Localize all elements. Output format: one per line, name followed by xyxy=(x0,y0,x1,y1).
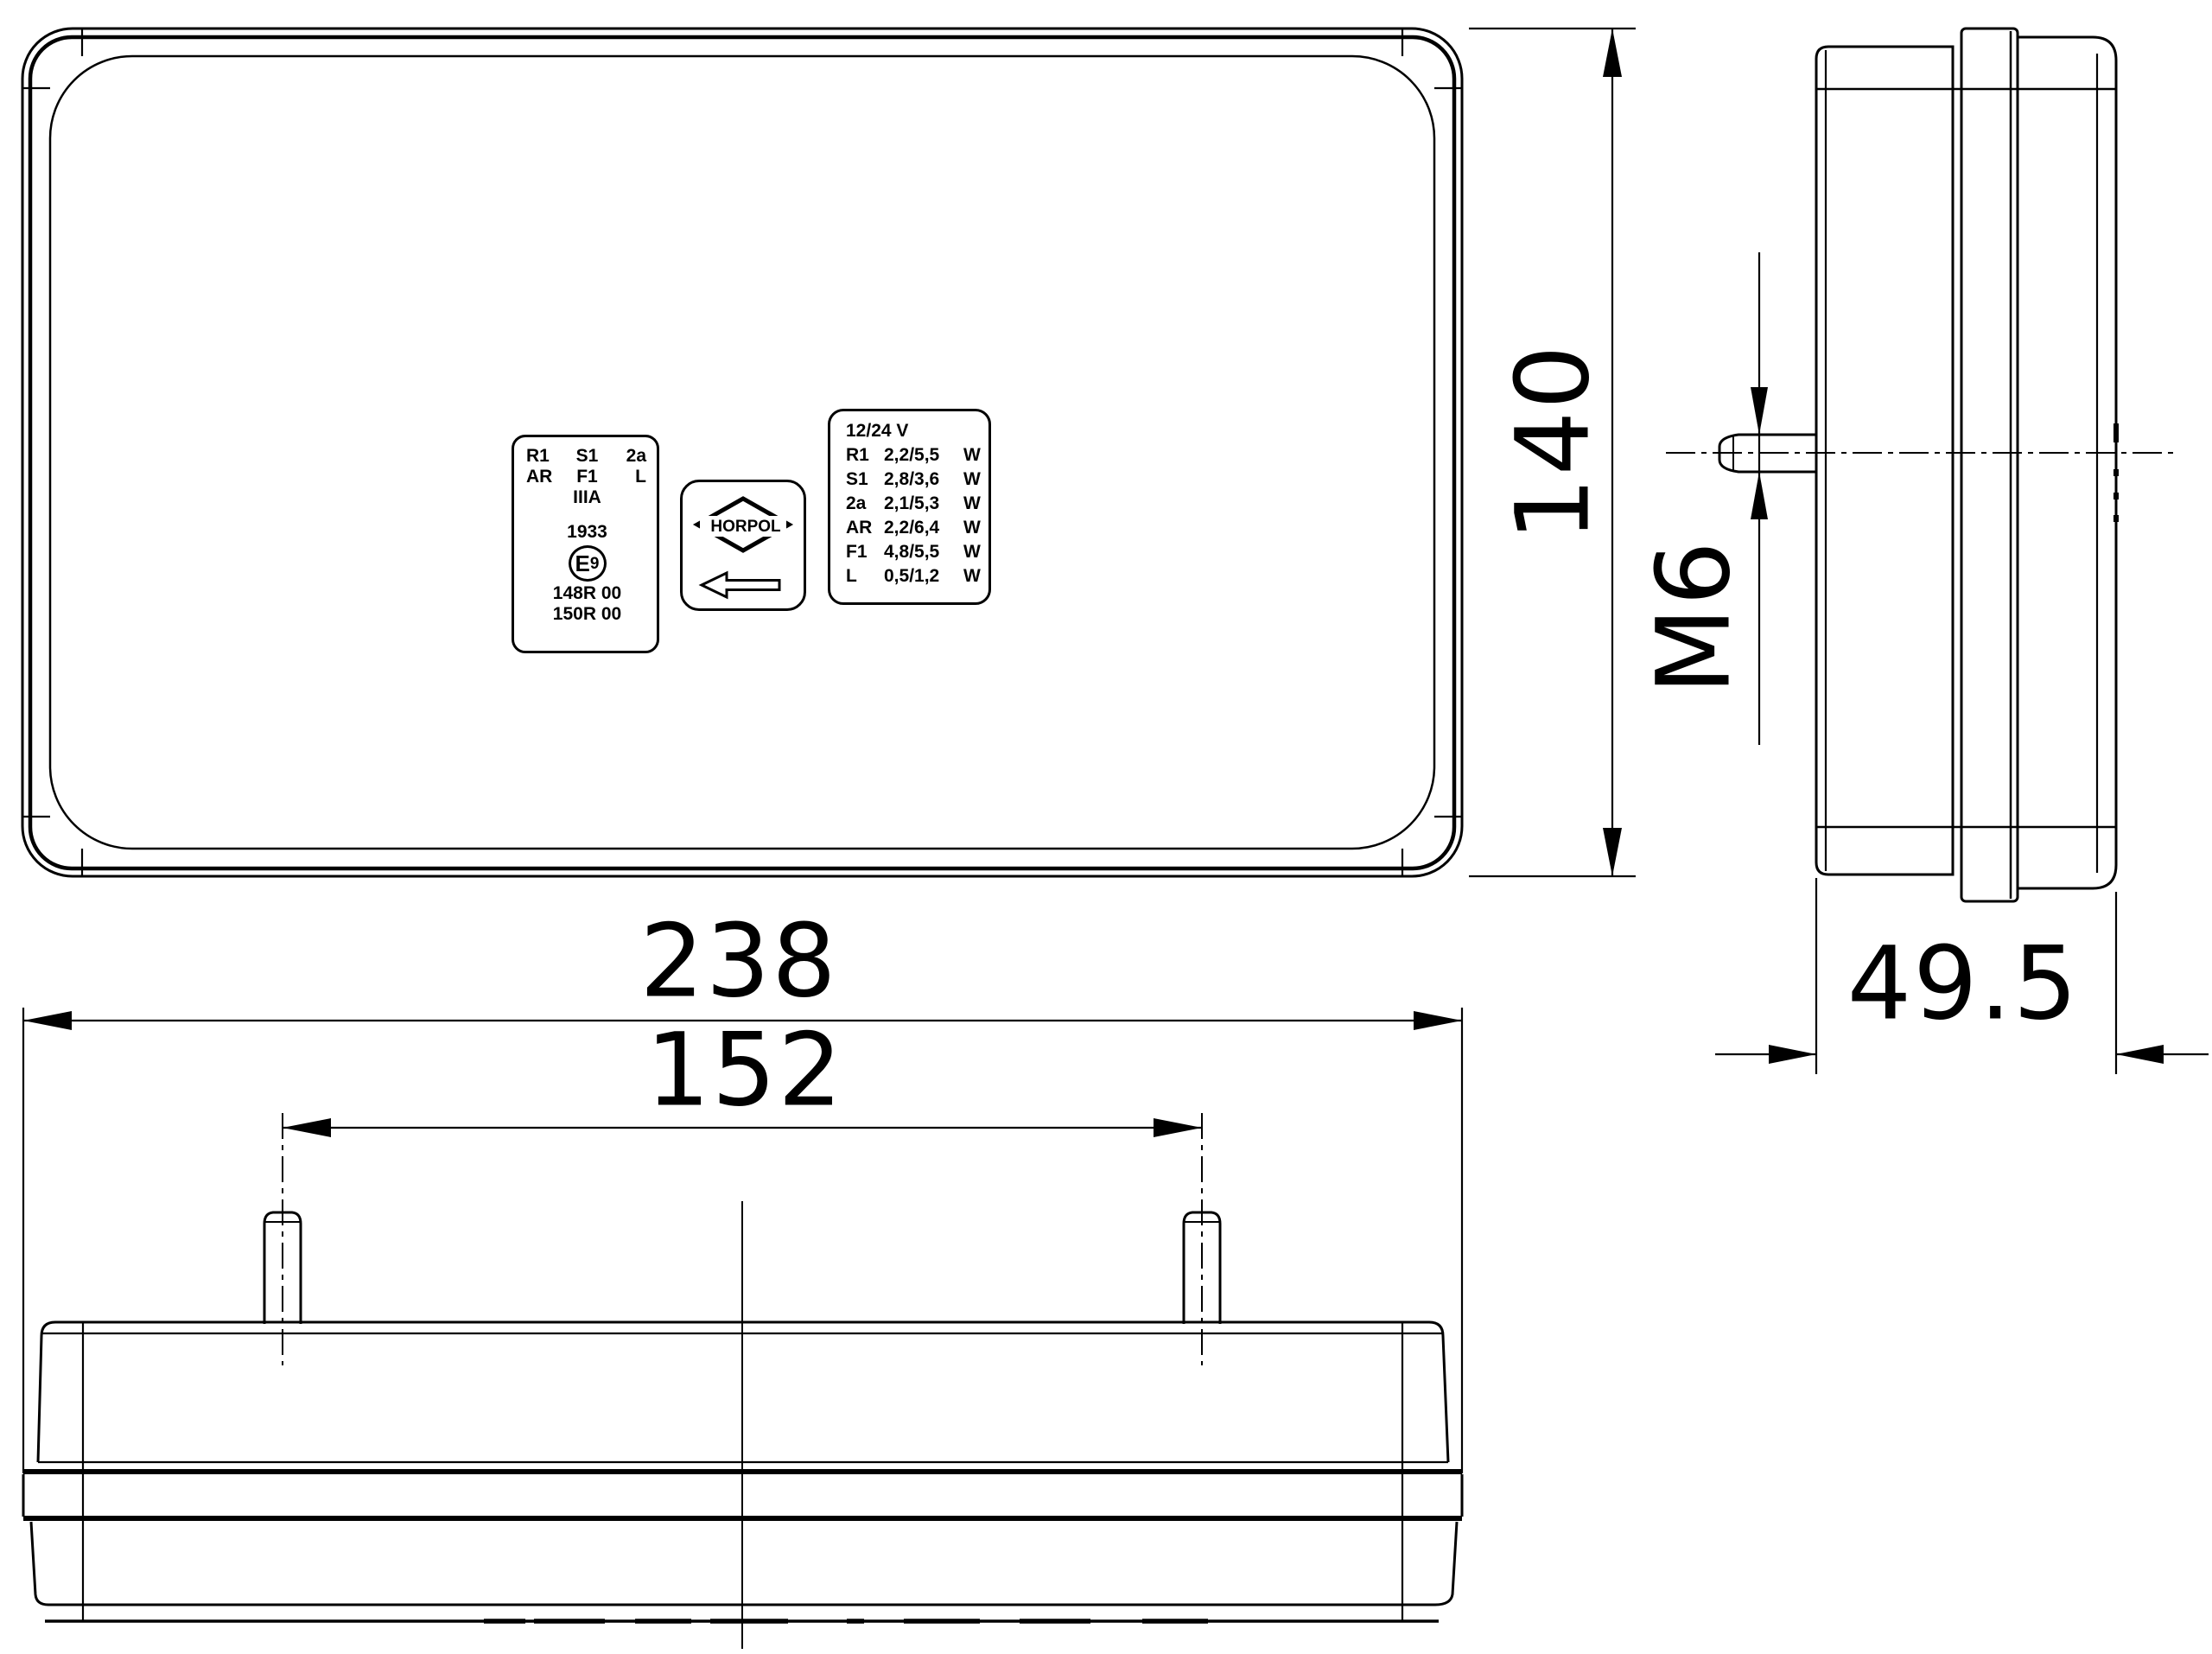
dim-overall-width: 238 xyxy=(639,902,837,1021)
corner-ticks xyxy=(22,29,1462,876)
fn-2a: 2a xyxy=(607,446,648,467)
approval-number: 1933 xyxy=(526,522,648,543)
approval-functions-row2: AR F1 L xyxy=(526,467,648,487)
e-mark: E9 xyxy=(569,545,607,582)
dim-m6-lines xyxy=(1751,252,1768,745)
spec-row: L 0,5/1,2 W xyxy=(846,564,988,588)
spec-row: 2a 2,1/5,3 W xyxy=(846,492,988,516)
approval-category: IIIA xyxy=(526,487,648,508)
spec-voltage: 12/24 V xyxy=(846,419,988,443)
side-view-outline xyxy=(1666,29,2174,901)
dim-overall-height: 140 xyxy=(1494,343,1612,541)
fn-f1: F1 xyxy=(567,467,607,487)
spec-label: 12/24 V R1 2,2/5,5 W S1 2,8/3,6 W 2a 2,1… xyxy=(828,409,991,605)
spec-row: F1 4,8/5,5 W xyxy=(846,540,988,564)
spec-row: S1 2,8/3,6 W xyxy=(846,468,988,492)
approval-functions-row1: R1 S1 2a xyxy=(526,446,648,467)
fn-l: L xyxy=(607,467,648,487)
e-mark-letter: E xyxy=(575,552,590,575)
fn-r1: R1 xyxy=(526,446,567,467)
technical-drawing-sheet: 238 152 140 M6 49.5 R1 S1 2a AR F1 L III… xyxy=(0,0,2212,1654)
fn-ar: AR xyxy=(526,467,567,487)
dim-overall-depth: 49.5 xyxy=(1847,925,2080,1043)
spec-row: AR 2,2/6,4 W xyxy=(846,516,988,540)
brand-label: HORPOL xyxy=(680,480,806,611)
brand-name: HORPOL xyxy=(708,518,783,537)
dim-stud-thread: M6 xyxy=(1635,539,1753,694)
front-view-outline xyxy=(22,29,1462,876)
fn-s1: S1 xyxy=(567,446,607,467)
e-mark-digit: 9 xyxy=(590,556,600,572)
bottom-view-outline xyxy=(23,1113,1462,1649)
drawing-linework xyxy=(0,0,2212,1654)
dim-stud-spacing: 152 xyxy=(645,1011,843,1129)
approval-label: R1 S1 2a AR F1 L IIIA 1933 E9 148R 00 15… xyxy=(512,435,659,653)
spec-row: R1 2,2/5,5 W xyxy=(846,443,988,468)
approval-code-2: 150R 00 xyxy=(526,604,648,625)
approval-code-1: 148R 00 xyxy=(526,583,648,604)
